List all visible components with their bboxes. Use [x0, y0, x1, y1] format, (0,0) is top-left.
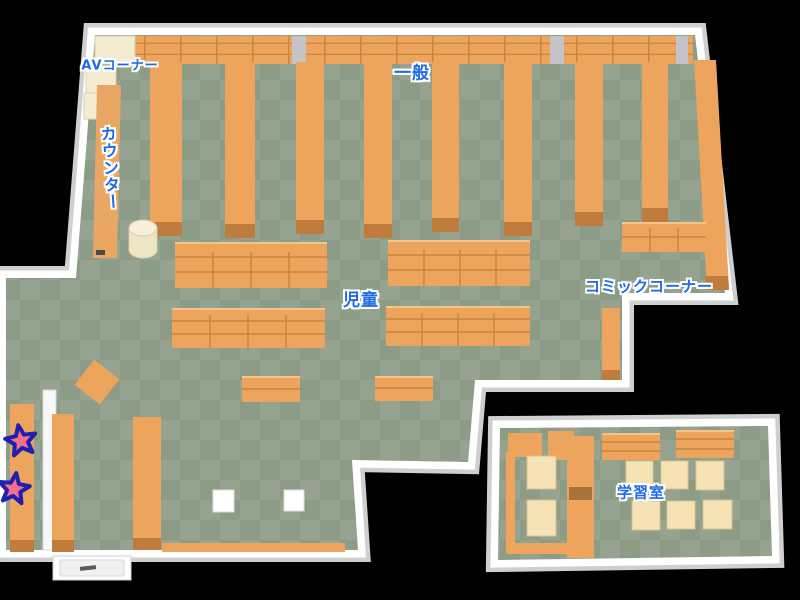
bookshelf-column [575, 62, 603, 226]
children-shelf [175, 242, 327, 288]
reading-bench [375, 376, 433, 401]
study-table [527, 456, 556, 489]
bottom-wall-shelf [162, 543, 345, 552]
bookshelf-column [364, 62, 392, 238]
entrance-door [53, 556, 131, 580]
wall-pillar [676, 36, 688, 64]
comic-top-shelf [622, 222, 706, 252]
label-children: 児童 [343, 286, 379, 311]
bookshelf-column [642, 62, 668, 222]
study-table [661, 461, 688, 489]
display-cylinder [129, 220, 157, 258]
comic-step-shelf [602, 308, 620, 380]
study-divider-wall [567, 436, 594, 558]
bookshelf-column [504, 62, 532, 236]
label-comic-corner: コミックコーナー [585, 276, 713, 297]
label-study-room: 学習室 [617, 482, 665, 503]
bookshelf-column [296, 62, 324, 234]
stool [213, 490, 234, 512]
bookshelf-column [150, 62, 182, 236]
floor-map: AVコーナー 一般 カウンター 児童 コミックコーナー 学習室 [0, 0, 800, 600]
floor-map-canvas [0, 0, 800, 600]
bookshelf-column [432, 62, 459, 232]
study-table [632, 501, 660, 530]
stool [284, 490, 304, 511]
bookshelf-column [52, 414, 74, 552]
reading-bench [242, 376, 300, 402]
wall-pillar [292, 36, 306, 64]
study-top-shelf [602, 433, 660, 460]
children-shelf [172, 308, 325, 348]
label-general: 一般 [394, 59, 430, 84]
children-shelf [386, 306, 530, 346]
study-table [703, 500, 732, 529]
wall-pillar [550, 36, 564, 64]
label-av-corner: AVコーナー [81, 55, 158, 74]
study-table [696, 461, 724, 490]
study-table [527, 500, 556, 536]
study-top-shelf [676, 430, 734, 458]
bookshelf-column [133, 417, 161, 550]
study-wall-shelf [506, 452, 515, 547]
bookshelf-column [225, 62, 255, 238]
study-table [667, 501, 695, 529]
children-shelf [388, 240, 530, 286]
